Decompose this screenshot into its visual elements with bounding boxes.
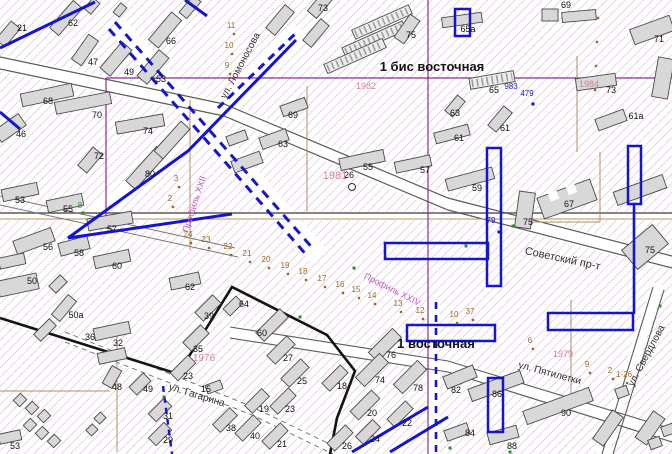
survey-dot: [594, 89, 596, 91]
vegetation-mark: [465, 245, 468, 248]
building-number: 61а: [628, 111, 643, 121]
building-number: 21: [277, 439, 287, 449]
map-canvas[interactable]: 2162474953666870744653555756586062507280…: [0, 0, 672, 454]
building-number: 65а: [460, 24, 475, 34]
vegetation-mark: [163, 396, 166, 399]
survey-number: 18: [299, 267, 308, 276]
building-number: 72: [94, 151, 104, 161]
building-number: 25: [297, 376, 307, 386]
building-number: 46: [16, 129, 26, 139]
building-number: 53: [15, 195, 25, 205]
survey-dot: [358, 297, 360, 299]
survey-dot: [190, 242, 192, 244]
survey-dot: [172, 206, 174, 208]
building-number: 62: [185, 282, 195, 292]
building-number: 78: [413, 383, 423, 393]
district-label-1bis-vostochnaya: 1 бис восточная: [380, 59, 485, 74]
building-number: 49: [124, 67, 134, 77]
vegetation-number: 8: [78, 201, 83, 210]
vegetation-mark: [512, 225, 515, 228]
building-number: 58: [74, 248, 84, 258]
year-label: 1982: [356, 81, 376, 91]
building: [542, 9, 558, 21]
survey-number: 15: [352, 285, 361, 294]
survey-number: 2: [608, 366, 613, 375]
building-number: 74: [375, 375, 385, 385]
survey-number: 10: [450, 310, 459, 319]
survey-dot: [400, 311, 402, 313]
building-number: 82: [451, 385, 461, 395]
building-number: 26: [342, 441, 352, 451]
map-viewport: 2162474953666870744653555756586062507280…: [0, 0, 672, 454]
survey-number: 19: [281, 261, 290, 270]
building-number: 90: [561, 408, 571, 418]
vegetation-mark: [82, 212, 85, 215]
survey-dot: [472, 319, 474, 321]
building-number: 24: [370, 434, 380, 444]
building-number: 56: [43, 242, 53, 252]
building-number: 64: [239, 299, 249, 309]
building-number: 21: [17, 23, 27, 33]
building-number: 19: [259, 404, 269, 414]
survey-number: 23: [202, 235, 211, 244]
building-number: 59: [472, 183, 482, 193]
survey-dot: [374, 303, 376, 305]
survey-number: 2: [168, 194, 173, 203]
building-number: 76: [386, 350, 396, 360]
building-number: 62: [68, 18, 78, 28]
utility-number: 479: [520, 89, 534, 98]
building-number: 23: [285, 404, 295, 414]
survey-dot: [208, 247, 210, 249]
survey-dot: [287, 273, 289, 275]
building-number: 23: [183, 371, 193, 381]
survey-dot: [305, 279, 307, 281]
survey-dot: [612, 378, 614, 380]
building-number: 74: [143, 126, 153, 136]
building-number: 67: [564, 199, 574, 209]
survey-number: 6: [528, 336, 533, 345]
building-number: 70: [92, 110, 102, 120]
building-number: 47: [88, 57, 98, 67]
building-number: 75: [645, 245, 655, 255]
building-number: 84: [465, 428, 475, 438]
building-number: 53: [156, 74, 166, 84]
building-number: 69: [288, 110, 298, 120]
survey-dot: [233, 33, 235, 35]
survey-number: 16: [336, 280, 345, 289]
building-number: 38: [226, 423, 236, 433]
survey-dot: [422, 318, 424, 320]
building-number: 32: [113, 338, 123, 348]
building-number: 73: [606, 85, 616, 95]
building-number: 39: [204, 311, 214, 321]
survey-number: 13: [394, 299, 403, 308]
building-number: 86: [492, 389, 502, 399]
building-number: 63: [450, 108, 460, 118]
building-number: 18: [337, 381, 347, 391]
building-number: 55: [363, 162, 373, 172]
building-number: 65: [489, 85, 499, 95]
utility-number: 983: [504, 82, 518, 91]
building-number: 53: [10, 441, 20, 451]
building-number: 61: [500, 123, 510, 133]
utility-mark: [532, 103, 535, 106]
building-number: 48: [112, 382, 122, 392]
vegetation-mark: [353, 267, 356, 270]
survey-dot: [456, 322, 458, 324]
building-number: 36: [85, 332, 95, 342]
survey-dot: [342, 292, 344, 294]
survey-number: 9: [585, 360, 590, 369]
vegetation-mark: [449, 447, 452, 450]
vegetation-mark: [659, 305, 662, 308]
building-number: 60: [112, 261, 122, 271]
building-number: 75: [523, 217, 533, 227]
survey-number: 37: [466, 307, 475, 316]
building-number: 27: [283, 353, 293, 363]
survey-dot: [589, 372, 591, 374]
building-number: 66: [166, 36, 176, 46]
building-number: 60: [257, 328, 267, 338]
survey-dot: [230, 254, 232, 256]
survey-number: 3: [174, 174, 179, 183]
building-number: 57: [107, 224, 117, 234]
survey-dot: [597, 17, 599, 19]
vegetation-mark: [299, 316, 302, 319]
building-number: 40: [250, 431, 260, 441]
year-label: 1984: [579, 79, 599, 89]
year-label: 1979: [553, 349, 573, 359]
building-number: 49: [143, 384, 153, 394]
year-label: 1981: [323, 170, 347, 182]
building-number: 68: [43, 96, 53, 106]
survey-number: 21: [243, 249, 252, 258]
building-number: 55: [63, 204, 73, 214]
survey-number: 10: [225, 41, 234, 50]
building-number: 50: [27, 276, 37, 286]
survey-dot: [178, 186, 180, 188]
survey-dot: [231, 53, 233, 55]
survey-dot: [249, 261, 251, 263]
survey-number: 11: [227, 21, 236, 30]
district-label-1-vostochnaya: 1 восточная: [397, 336, 475, 351]
building-number: 50а: [68, 310, 83, 320]
survey-dot: [532, 348, 534, 350]
building-number: 73: [318, 3, 328, 13]
survey-dot: [596, 41, 598, 43]
building-number: 61: [454, 133, 464, 143]
building-number: 71: [654, 34, 664, 44]
survey-dot: [595, 65, 597, 67]
survey-number: 22: [224, 242, 233, 251]
year-label: 1976: [193, 353, 216, 364]
survey-dot: [324, 286, 326, 288]
building-number: 29: [163, 435, 173, 445]
building-number: 22: [402, 418, 412, 428]
building-number: 75: [406, 30, 416, 40]
building-number: 63: [278, 139, 288, 149]
utility-mark: [498, 231, 501, 234]
survey-number: 17: [318, 274, 327, 283]
building-number: 80: [145, 169, 155, 179]
survey-number: 20: [262, 255, 271, 264]
building-number: 69: [561, 0, 571, 10]
utility-number: 79: [487, 216, 496, 225]
survey-number: 9: [225, 61, 230, 70]
building-number: 31: [163, 411, 173, 421]
building-number: 20: [367, 408, 377, 418]
building-number: 57: [420, 165, 430, 175]
building-number: 88: [507, 441, 517, 451]
survey-number: 14: [368, 291, 377, 300]
survey-dot: [268, 267, 270, 269]
